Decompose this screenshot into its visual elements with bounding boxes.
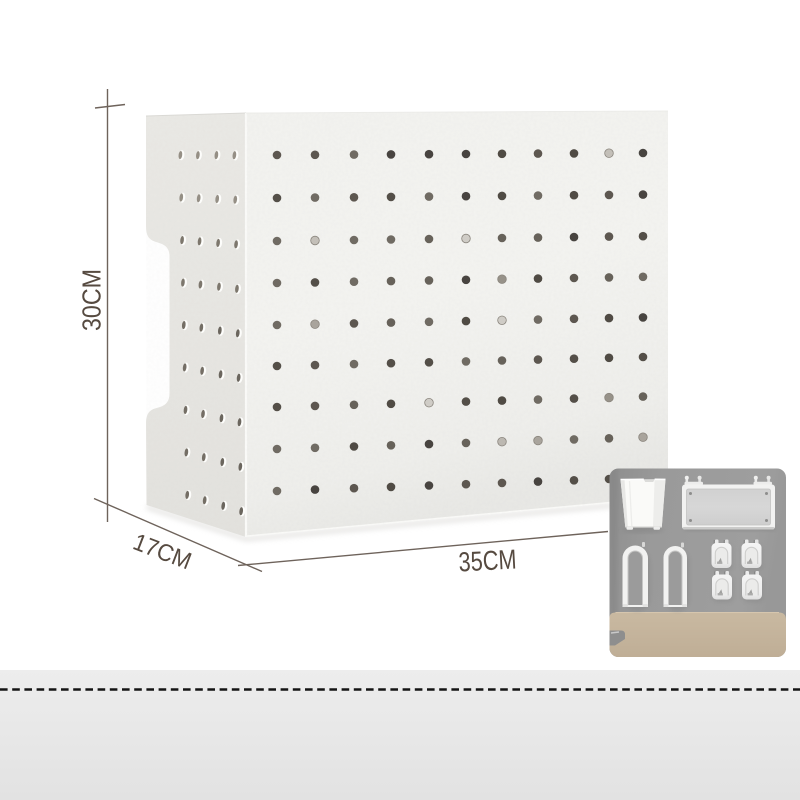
svg-text:35CM: 35CM	[458, 544, 518, 578]
svg-text:30CM: 30CM	[77, 269, 107, 331]
